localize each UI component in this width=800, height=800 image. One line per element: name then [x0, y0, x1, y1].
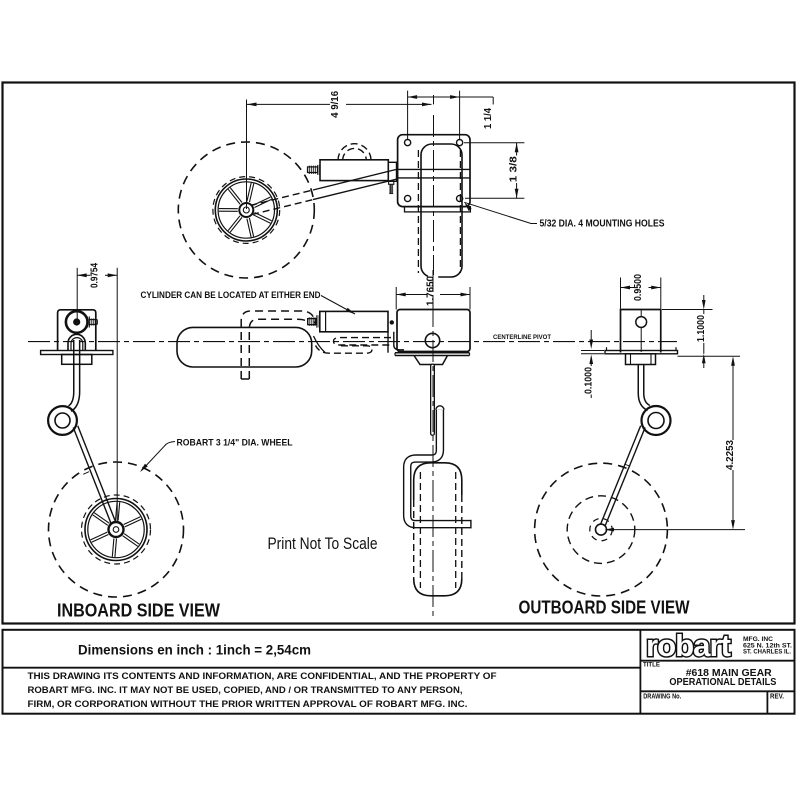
svg-text:0.9754: 0.9754 [90, 263, 101, 288]
svg-text:ROBART 3 1/4" DIA. WHEEL: ROBART 3 1/4" DIA. WHEEL [177, 438, 293, 449]
svg-text:ST. CHARLES IL.: ST. CHARLES IL. [743, 649, 791, 656]
svg-text:ROBART MFG. INC. IT MAY NOT BE: ROBART MFG. INC. IT MAY NOT BE USED, COP… [28, 685, 463, 695]
svg-text:Dimensions en inch : 1inch = 2: Dimensions en inch : 1inch = 2,54cm [78, 643, 311, 658]
svg-text:1.1000: 1.1000 [696, 315, 707, 342]
svg-text:1 1/4: 1 1/4 [483, 108, 494, 129]
svg-text:FIRM, OR CORPORATION WITHOUT T: FIRM, OR CORPORATION WITHOUT THE PRIOR W… [28, 699, 468, 709]
svg-text:INBOARD SIDE VIEW: INBOARD SIDE VIEW [57, 601, 220, 621]
svg-text:0.1000: 0.1000 [583, 367, 594, 394]
svg-text:TITLE: TITLE [643, 662, 661, 669]
svg-text:0.9500: 0.9500 [633, 274, 644, 301]
svg-text:CYLINDER CAN BE LOCATED AT EIT: CYLINDER CAN BE LOCATED AT EITHER END [141, 290, 321, 301]
svg-text:1 3/8: 1 3/8 [509, 156, 520, 183]
svg-text:5/32 DIA. 4 MOUNTING HOLES: 5/32 DIA. 4 MOUNTING HOLES [540, 219, 665, 230]
svg-text:CENTERLINE PIVOT: CENTERLINE PIVOT [493, 334, 551, 341]
svg-text:OPERATIONAL DETAILS: OPERATIONAL DETAILS [669, 676, 776, 688]
svg-text:OUTBOARD SIDE VIEW: OUTBOARD SIDE VIEW [519, 598, 690, 618]
svg-text:THIS DRAWING ITS CONTENTS AND: THIS DRAWING ITS CONTENTS AND INFORMATIO… [28, 671, 498, 681]
svg-text:4 9/16: 4 9/16 [330, 90, 341, 117]
svg-text:DRAWING No.: DRAWING No. [643, 694, 681, 701]
svg-text:REV.: REV. [770, 694, 784, 701]
svg-text:Print Not To Scale: Print Not To Scale [268, 535, 378, 553]
svg-text:4.2253: 4.2253 [725, 440, 736, 470]
svg-text:robart: robart [646, 628, 731, 663]
svg-text:1.7650: 1.7650 [425, 276, 436, 306]
